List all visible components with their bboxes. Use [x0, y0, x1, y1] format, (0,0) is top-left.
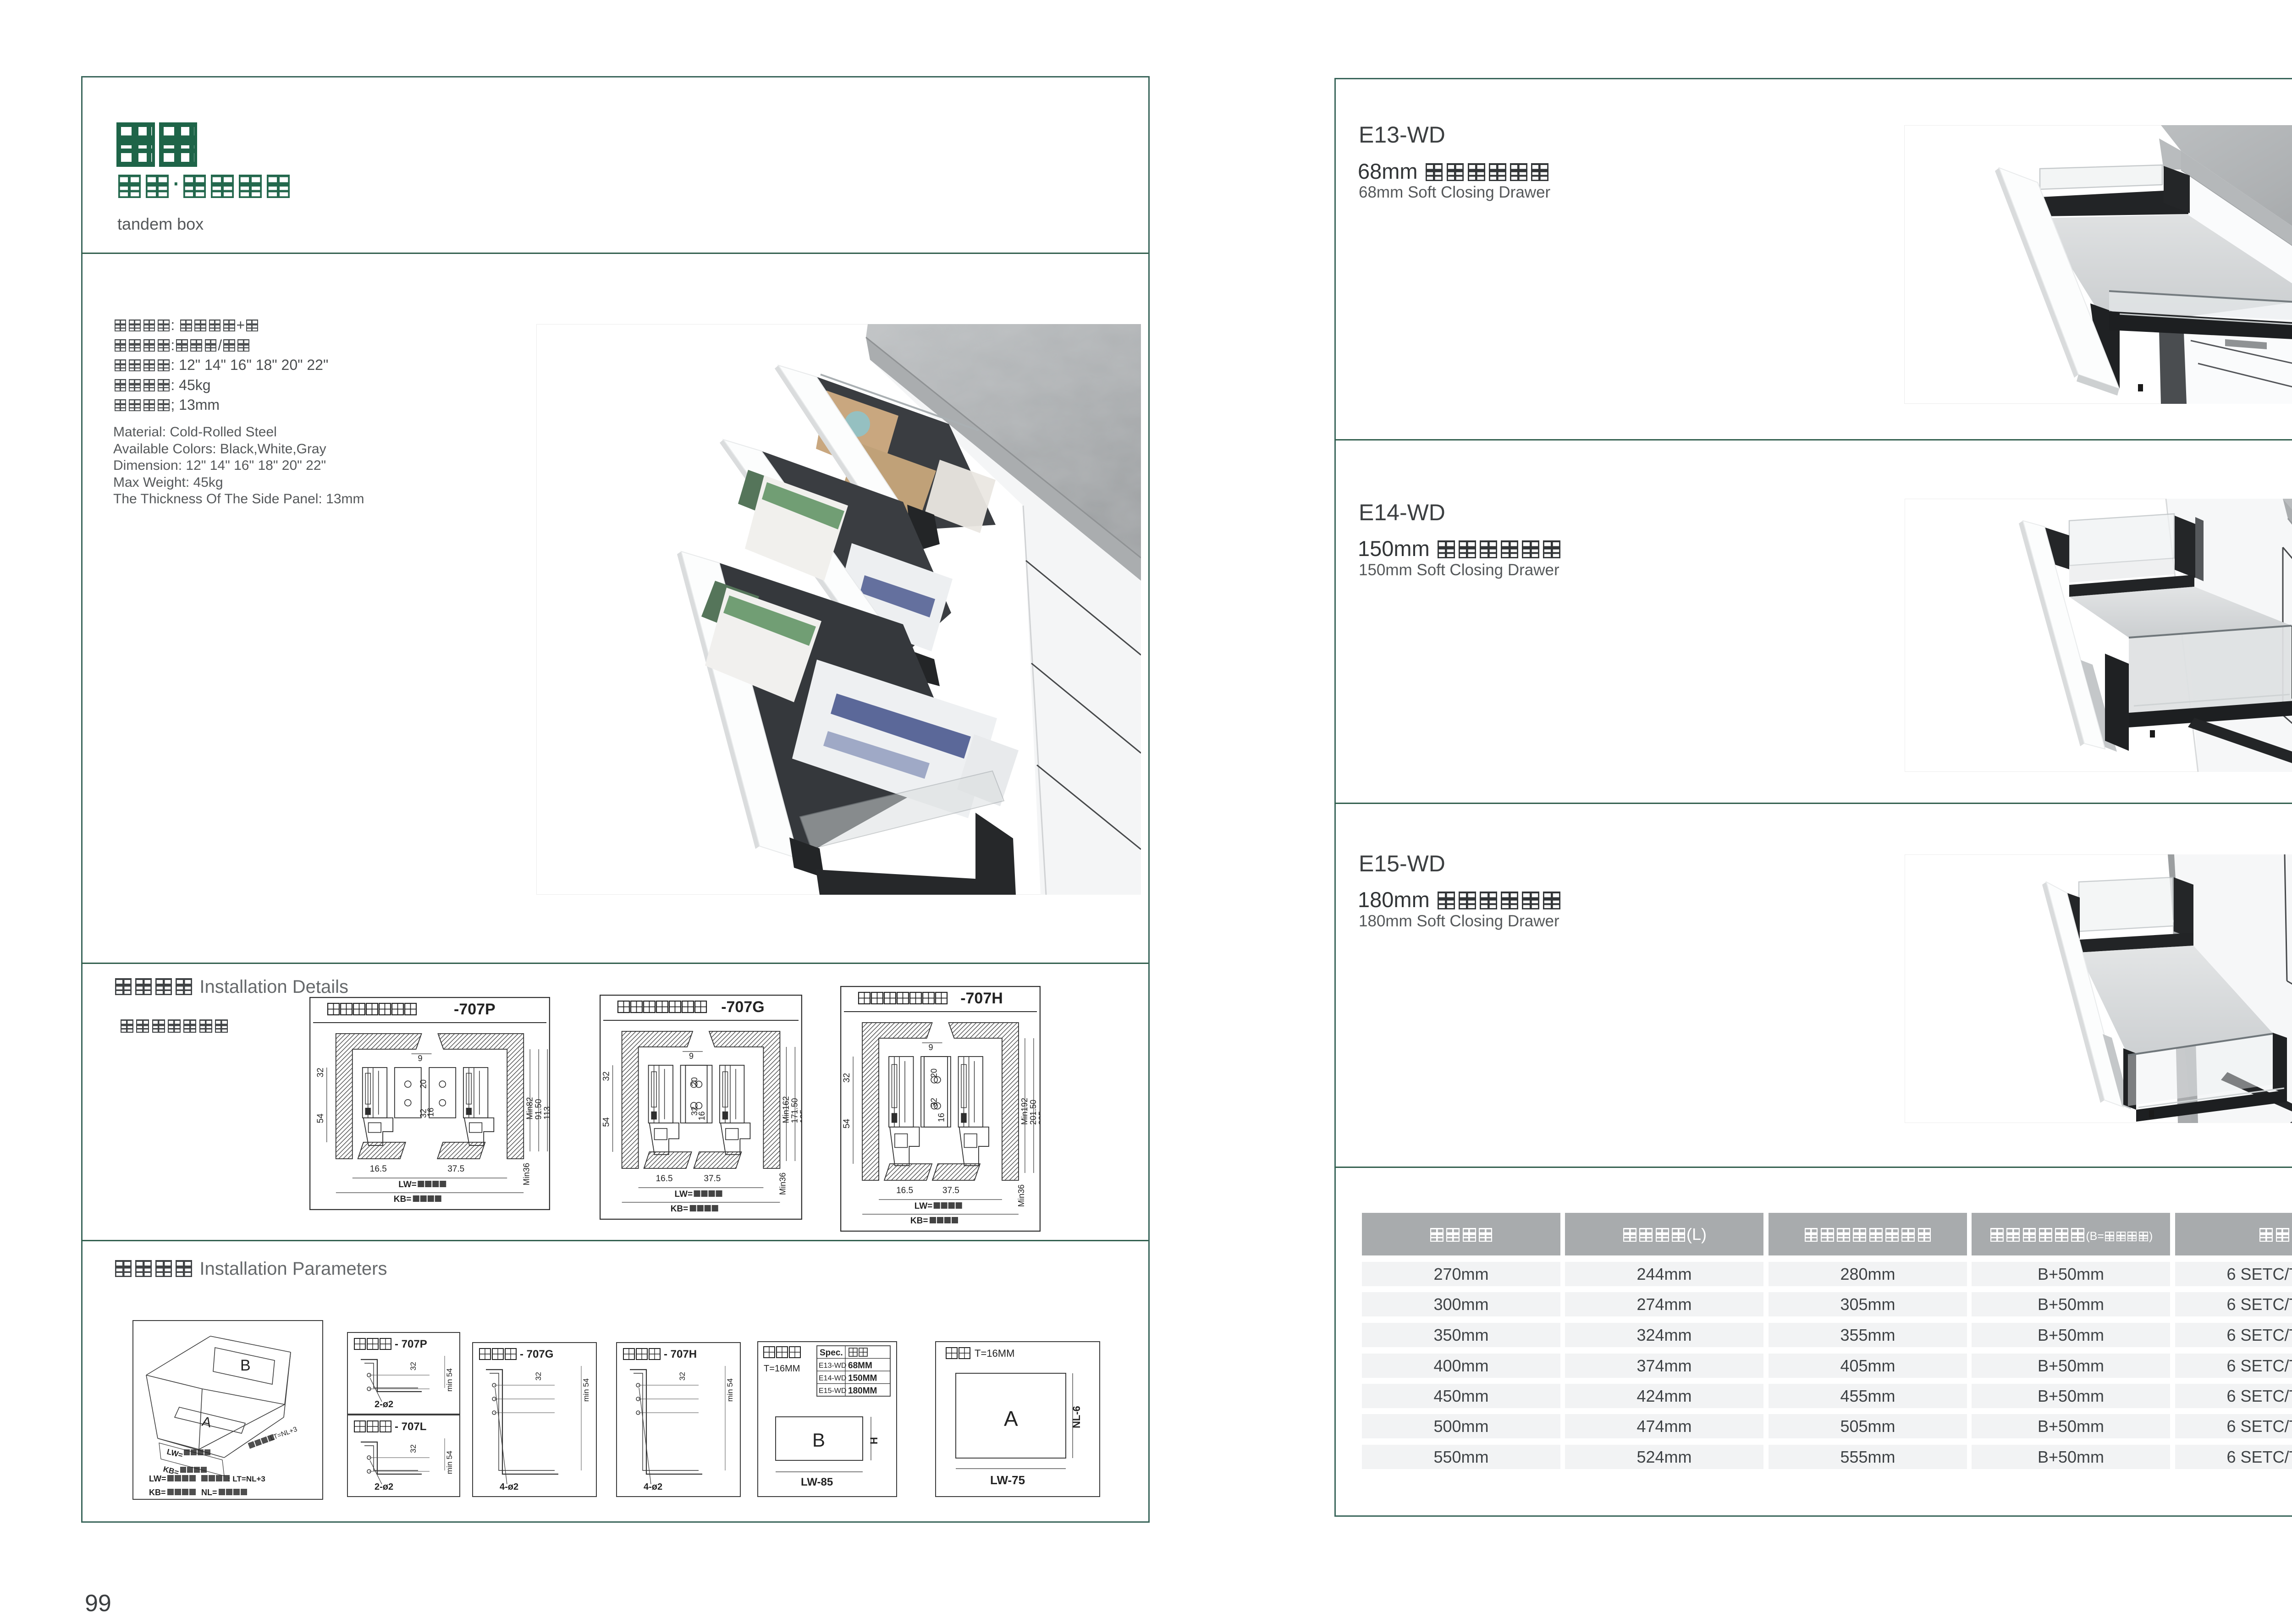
- svg-text:LW=: LW=: [149, 1474, 166, 1483]
- svg-text:16.5: 16.5: [896, 1186, 913, 1195]
- svg-text:32: 32: [409, 1362, 418, 1371]
- svg-text:16.5: 16.5: [656, 1174, 673, 1184]
- svg-text:LT=NL+3: LT=NL+3: [269, 1425, 298, 1442]
- svg-text:171.50: 171.50: [790, 1098, 799, 1123]
- svg-text:32: 32: [409, 1444, 418, 1453]
- svg-text:180MM: 180MM: [848, 1386, 877, 1396]
- svg-text:Min82: Min82: [525, 1097, 534, 1120]
- svg-text:32: 32: [930, 1098, 939, 1107]
- svg-text:-707P: -707P: [454, 1001, 496, 1018]
- svg-text:B: B: [812, 1429, 825, 1451]
- svg-text:2-ø2: 2-ø2: [375, 1399, 393, 1409]
- svg-text:- 707G: - 707G: [520, 1348, 553, 1360]
- svg-text:KB=: KB=: [910, 1216, 928, 1226]
- svg-text:KB=: KB=: [149, 1488, 166, 1497]
- svg-text:20: 20: [930, 1068, 939, 1078]
- svg-text:KB=: KB=: [394, 1195, 412, 1204]
- svg-text:32: 32: [678, 1372, 687, 1381]
- svg-text:9: 9: [418, 1054, 423, 1063]
- svg-text:A: A: [1004, 1407, 1018, 1431]
- svg-text:20: 20: [690, 1077, 699, 1086]
- svg-text:16: 16: [426, 1107, 435, 1117]
- svg-text:54: 54: [842, 1118, 852, 1129]
- svg-text:A: A: [201, 1414, 213, 1431]
- svg-text:201.50: 201.50: [1029, 1100, 1038, 1125]
- svg-text:E14-WD: E14-WD: [819, 1375, 846, 1382]
- svg-text:16: 16: [937, 1113, 946, 1122]
- svg-text:min 54: min 54: [726, 1378, 734, 1402]
- svg-text:E13-WD: E13-WD: [819, 1362, 846, 1370]
- svg-text:min 54: min 54: [582, 1378, 590, 1402]
- svg-text:min 54: min 54: [445, 1451, 454, 1474]
- svg-text:150MM: 150MM: [848, 1374, 877, 1383]
- svg-text:37.5: 37.5: [942, 1186, 959, 1195]
- svg-text:37.5: 37.5: [704, 1174, 721, 1184]
- svg-text:LW-75: LW-75: [990, 1473, 1025, 1487]
- svg-text:91.50: 91.50: [534, 1099, 543, 1120]
- svg-text:54: 54: [602, 1117, 612, 1127]
- svg-text:Spec.: Spec.: [820, 1348, 843, 1358]
- svg-text:- 707P: - 707P: [395, 1338, 427, 1350]
- svg-text:LW=: LW=: [675, 1189, 693, 1199]
- svg-text:32: 32: [842, 1073, 852, 1083]
- svg-text:Min36: Min36: [1017, 1184, 1026, 1207]
- svg-text:Min36: Min36: [522, 1163, 531, 1185]
- svg-text:68MM: 68MM: [848, 1361, 872, 1371]
- svg-text:225: 225: [1037, 1111, 1041, 1125]
- svg-text:- 707H: - 707H: [664, 1348, 697, 1360]
- svg-text:LW=: LW=: [915, 1201, 933, 1211]
- svg-text:Min192: Min192: [1020, 1098, 1029, 1125]
- svg-text:: LT=NL+3: : LT=NL+3: [228, 1475, 265, 1483]
- svg-text:Min162: Min162: [781, 1096, 790, 1123]
- svg-text:NL-6: NL-6: [1071, 1406, 1082, 1428]
- svg-text:54: 54: [316, 1113, 325, 1123]
- svg-text:16: 16: [697, 1111, 706, 1120]
- svg-text:-707H: -707H: [960, 990, 1003, 1007]
- svg-text:NL=: NL=: [201, 1488, 217, 1497]
- svg-text:LW-85: LW-85: [801, 1476, 833, 1488]
- svg-text:- 707L: - 707L: [395, 1420, 426, 1433]
- svg-text:32: 32: [602, 1071, 612, 1081]
- svg-text:113: 113: [542, 1107, 550, 1120]
- svg-text:2-ø2: 2-ø2: [375, 1482, 393, 1492]
- svg-text:E15-WD: E15-WD: [819, 1387, 846, 1395]
- svg-text:16.5: 16.5: [370, 1164, 387, 1174]
- svg-text:Min36: Min36: [778, 1173, 787, 1195]
- svg-text:20: 20: [419, 1079, 428, 1089]
- svg-text:9: 9: [929, 1043, 933, 1052]
- svg-text:LW=: LW=: [398, 1180, 417, 1189]
- svg-text:4-ø2: 4-ø2: [644, 1482, 662, 1492]
- svg-text:KB=: KB=: [671, 1204, 689, 1214]
- svg-text:32: 32: [534, 1372, 543, 1381]
- svg-text:195: 195: [799, 1109, 802, 1123]
- svg-text:T=16MM: T=16MM: [975, 1348, 1014, 1359]
- svg-text:32: 32: [316, 1068, 325, 1077]
- svg-text:37.5: 37.5: [447, 1164, 464, 1174]
- svg-text:B: B: [240, 1357, 251, 1374]
- svg-text:4-ø2: 4-ø2: [500, 1482, 518, 1492]
- svg-text:min 54: min 54: [445, 1368, 454, 1392]
- svg-text:9: 9: [689, 1051, 694, 1061]
- svg-text:T=16MM: T=16MM: [764, 1364, 800, 1374]
- svg-text:H: H: [868, 1437, 880, 1444]
- svg-text:-707G: -707G: [721, 998, 765, 1016]
